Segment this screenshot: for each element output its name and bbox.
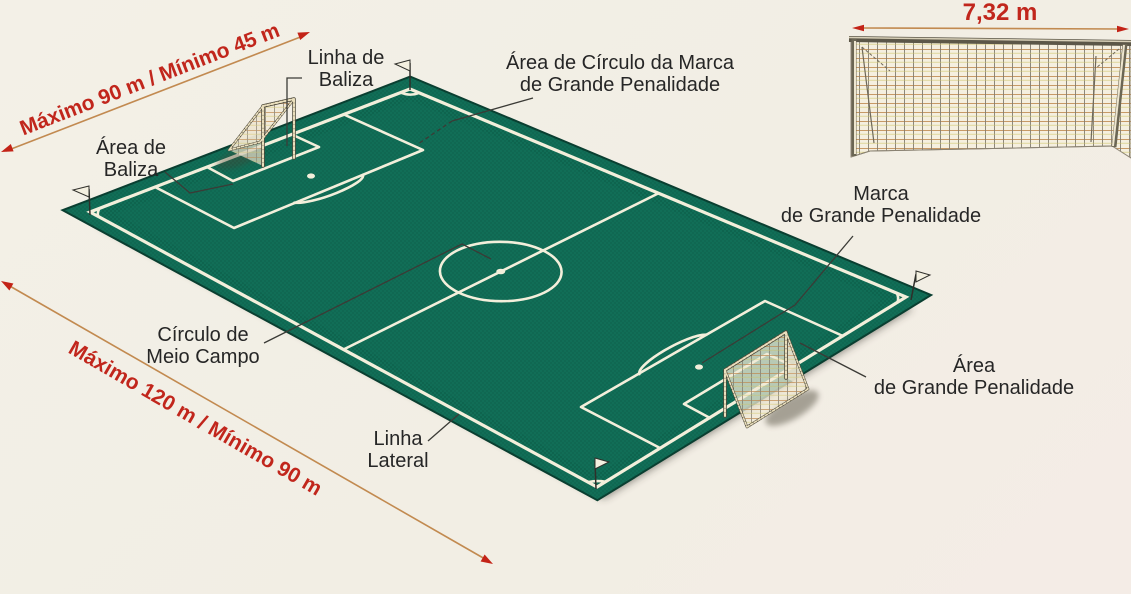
goal-illustration [849,37,1131,158]
label-goal-line-2: Baliza [308,69,385,91]
label-center-circle-1: Círculo de [146,324,259,346]
label-goal-area-2: Baliza [96,159,166,181]
label-touchline: Linha Lateral [367,428,428,472]
label-goal-line: Linha de Baliza [308,47,385,91]
far-penalty-spot [695,364,703,369]
label-penalty-area-2: de Grande Penalidade [874,377,1074,399]
label-penalty-mark: Marca de Grande Penalidade [781,183,981,227]
label-center-circle: Círculo de Meio Campo [146,324,259,368]
soccer-field-diagram: Linha de Baliza Área de Círculo da Marca… [0,0,1131,594]
near-penalty-spot [307,173,315,178]
label-goal-area: Área de Baliza [96,137,166,181]
label-penalty-arc-1: Área de Círculo da Marca [506,52,734,74]
label-penalty-area: Área de Grande Penalidade [874,355,1074,399]
label-goal-area-1: Área de [96,137,166,159]
corner-arc-bottom [588,481,605,482]
label-penalty-area-1: Área [874,355,1074,377]
dimension-goal-width-label: 7,32 m [963,0,1038,27]
label-touchline-2: Lateral [367,450,428,472]
center-spot [496,269,505,275]
label-penalty-mark-2: de Grande Penalidade [781,205,981,227]
label-goal-line-1: Linha de [308,47,385,69]
leader-touchline [428,414,459,441]
corner-arc-right [897,293,898,302]
corner-arc-left [98,208,99,216]
label-center-circle-2: Meio Campo [146,346,259,368]
label-penalty-arc-2: de Grande Penalidade [506,74,734,96]
label-penalty-mark-1: Marca [781,183,981,205]
label-penalty-arc: Área de Círculo da Marca de Grande Penal… [506,52,734,96]
label-touchline-1: Linha [367,428,428,450]
